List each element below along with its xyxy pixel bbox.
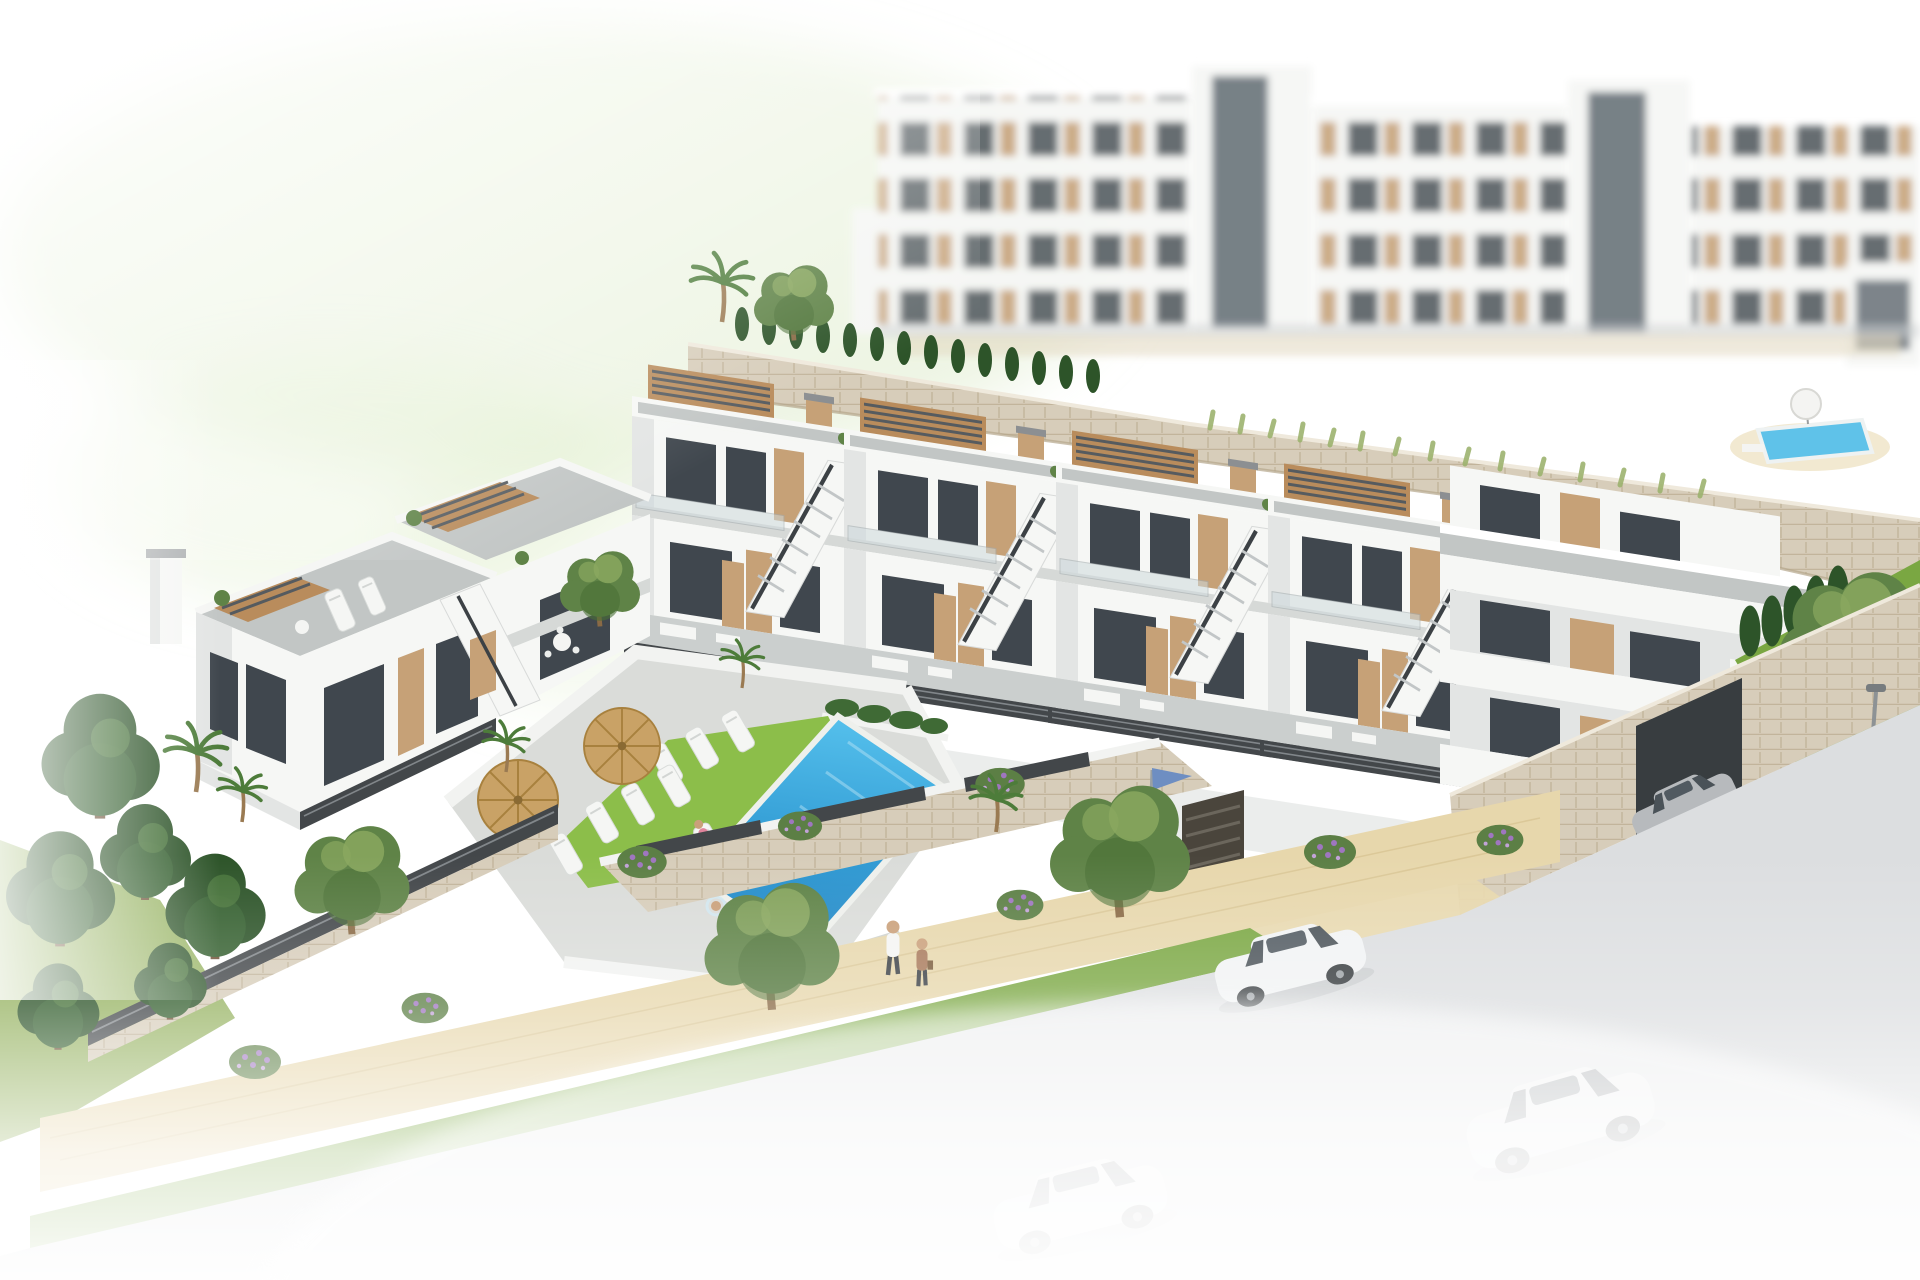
background-apartment-blocks: [852, 66, 1920, 366]
townhouse-unit-3: [1048, 427, 1300, 762]
white-parasol: [1791, 389, 1821, 419]
render-canvas: [0, 0, 1920, 1280]
mini-pool-terrace: [1730, 389, 1890, 471]
straw-parasol-1: [584, 708, 660, 784]
architectural-render: [0, 0, 1920, 1280]
